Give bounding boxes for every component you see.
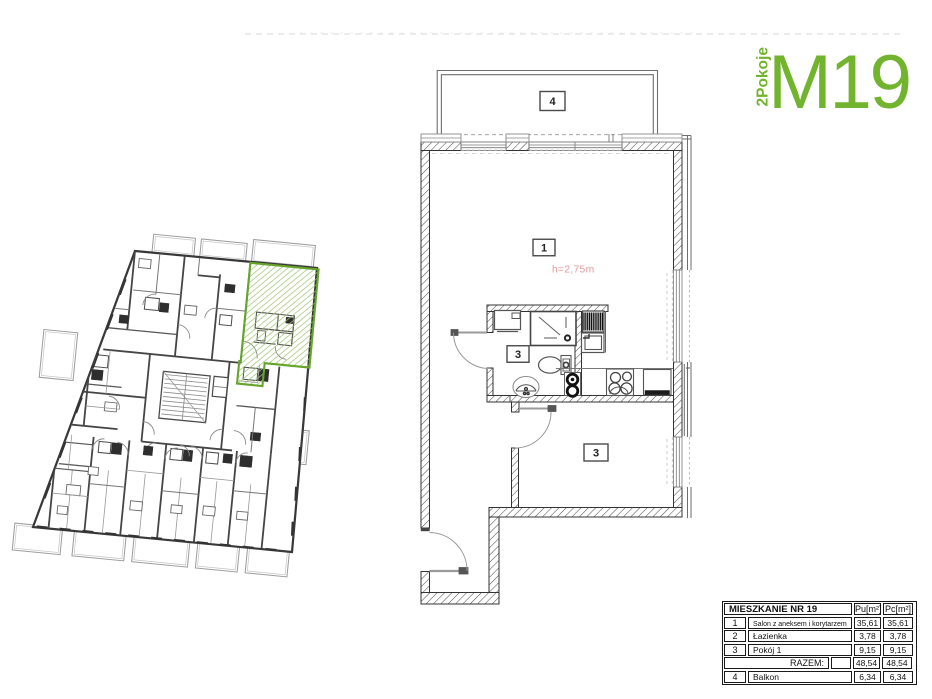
svg-text:h=2,75m: h=2,75m <box>552 265 594 276</box>
svg-text:3: 3 <box>515 349 521 361</box>
svg-text:3: 3 <box>593 447 599 459</box>
svg-text:M19: M19 <box>768 40 909 125</box>
svg-text:1: 1 <box>541 242 547 254</box>
svg-text:4: 4 <box>549 96 556 108</box>
svg-text:2Pokoje: 2Pokoje <box>755 47 772 107</box>
